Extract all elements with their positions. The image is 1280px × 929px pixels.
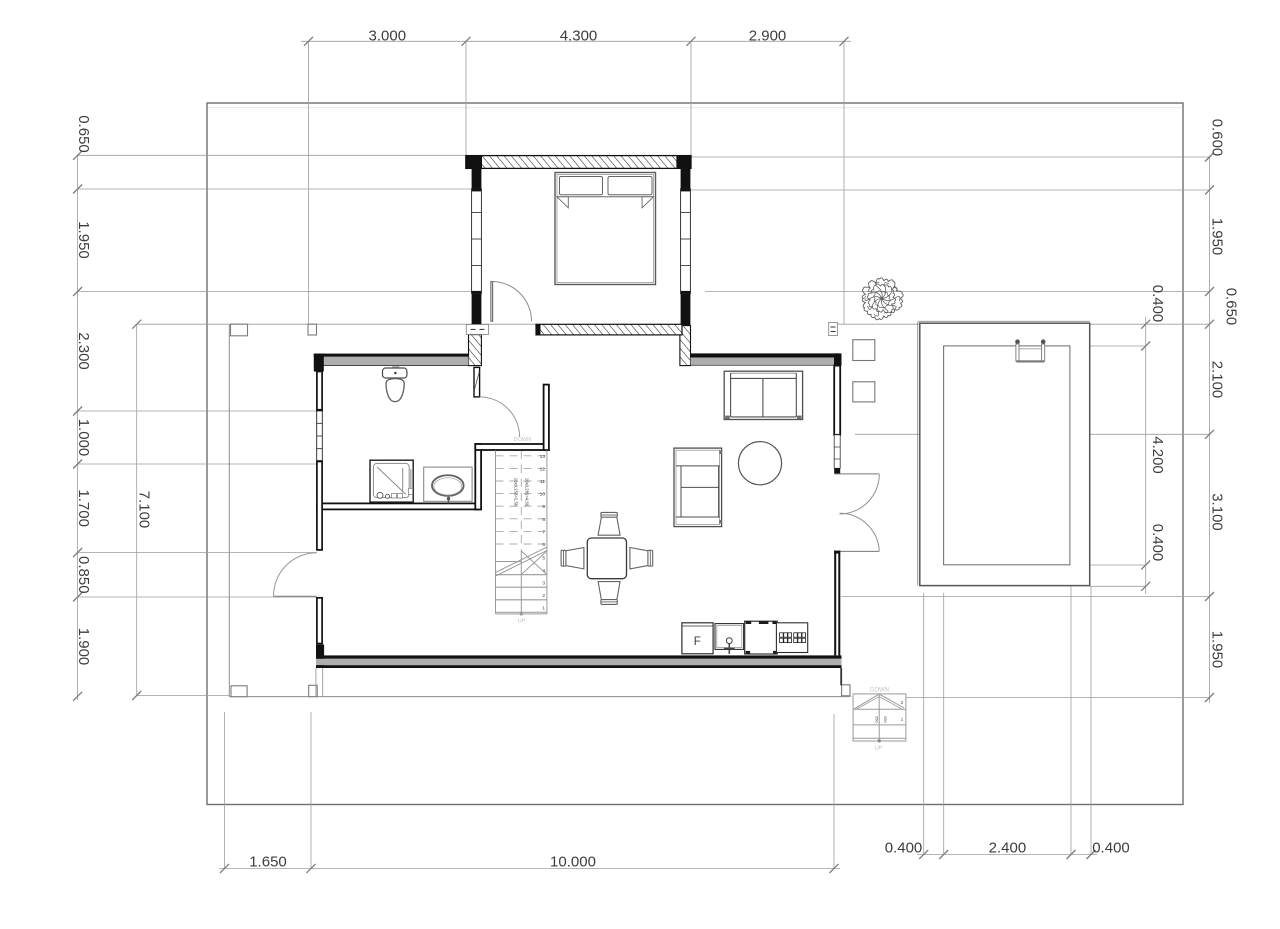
svg-text:2.900: 2.900: [749, 28, 787, 45]
svg-text:2.100: 2.100: [1209, 361, 1226, 399]
svg-text:0.650: 0.650: [75, 115, 92, 153]
svg-text:0.400: 0.400: [1149, 285, 1166, 323]
svg-text:1.950: 1.950: [75, 221, 92, 259]
svg-text:5: 5: [542, 556, 545, 562]
svg-text:F: F: [694, 636, 701, 648]
svg-text:0.850: 0.850: [75, 556, 92, 594]
svg-text:DOWN: DOWN: [870, 688, 889, 694]
svg-text:2.400: 2.400: [989, 839, 1027, 856]
svg-text:1.650: 1.650: [249, 853, 287, 870]
svg-text:0.400: 0.400: [1149, 524, 1166, 562]
svg-text:0.600: 0.600: [1209, 119, 1226, 157]
svg-text:1.900: 1.900: [75, 628, 92, 666]
svg-text:1.000: 1.000: [75, 419, 92, 457]
svg-text:16x0,153=2,50: 16x0,153=2,50: [514, 478, 519, 507]
svg-text:11: 11: [540, 479, 545, 485]
svg-text:3: 3: [542, 581, 545, 587]
svg-text:10.000: 10.000: [550, 853, 596, 870]
svg-text:2.300: 2.300: [75, 332, 92, 370]
svg-text:3.100: 3.100: [1209, 493, 1226, 531]
svg-text:2: 2: [542, 593, 545, 599]
svg-text:10: 10: [540, 492, 546, 498]
svg-text:1.950: 1.950: [1209, 631, 1226, 669]
svg-text:6: 6: [542, 542, 545, 548]
svg-text:7: 7: [542, 529, 545, 535]
svg-text:4: 4: [542, 568, 545, 574]
svg-text:13: 13: [540, 454, 546, 460]
svg-text:12: 12: [540, 466, 546, 472]
svg-text:0.400: 0.400: [1092, 839, 1130, 856]
svg-text:0.650: 0.650: [1223, 288, 1240, 326]
svg-text:250: 250: [875, 716, 880, 723]
svg-text:250: 250: [883, 716, 888, 723]
svg-text:9: 9: [542, 504, 545, 510]
svg-text:1.950: 1.950: [1209, 218, 1226, 256]
svg-text:4.200: 4.200: [1149, 436, 1166, 474]
svg-text:4.300: 4.300: [560, 28, 598, 45]
svg-text:8: 8: [542, 517, 545, 523]
svg-text:DOWN: DOWN: [513, 437, 531, 443]
svg-text:3.000: 3.000: [369, 28, 407, 45]
svg-text:0.400: 0.400: [885, 839, 923, 856]
svg-text:7.100: 7.100: [136, 491, 153, 529]
svg-text:1: 1: [542, 606, 545, 612]
svg-text:1.700: 1.700: [75, 489, 92, 527]
svg-text:16x0,281=4,50: 16x0,281=4,50: [525, 478, 530, 507]
svg-text:UP: UP: [518, 619, 526, 625]
svg-text:UP: UP: [875, 746, 883, 752]
